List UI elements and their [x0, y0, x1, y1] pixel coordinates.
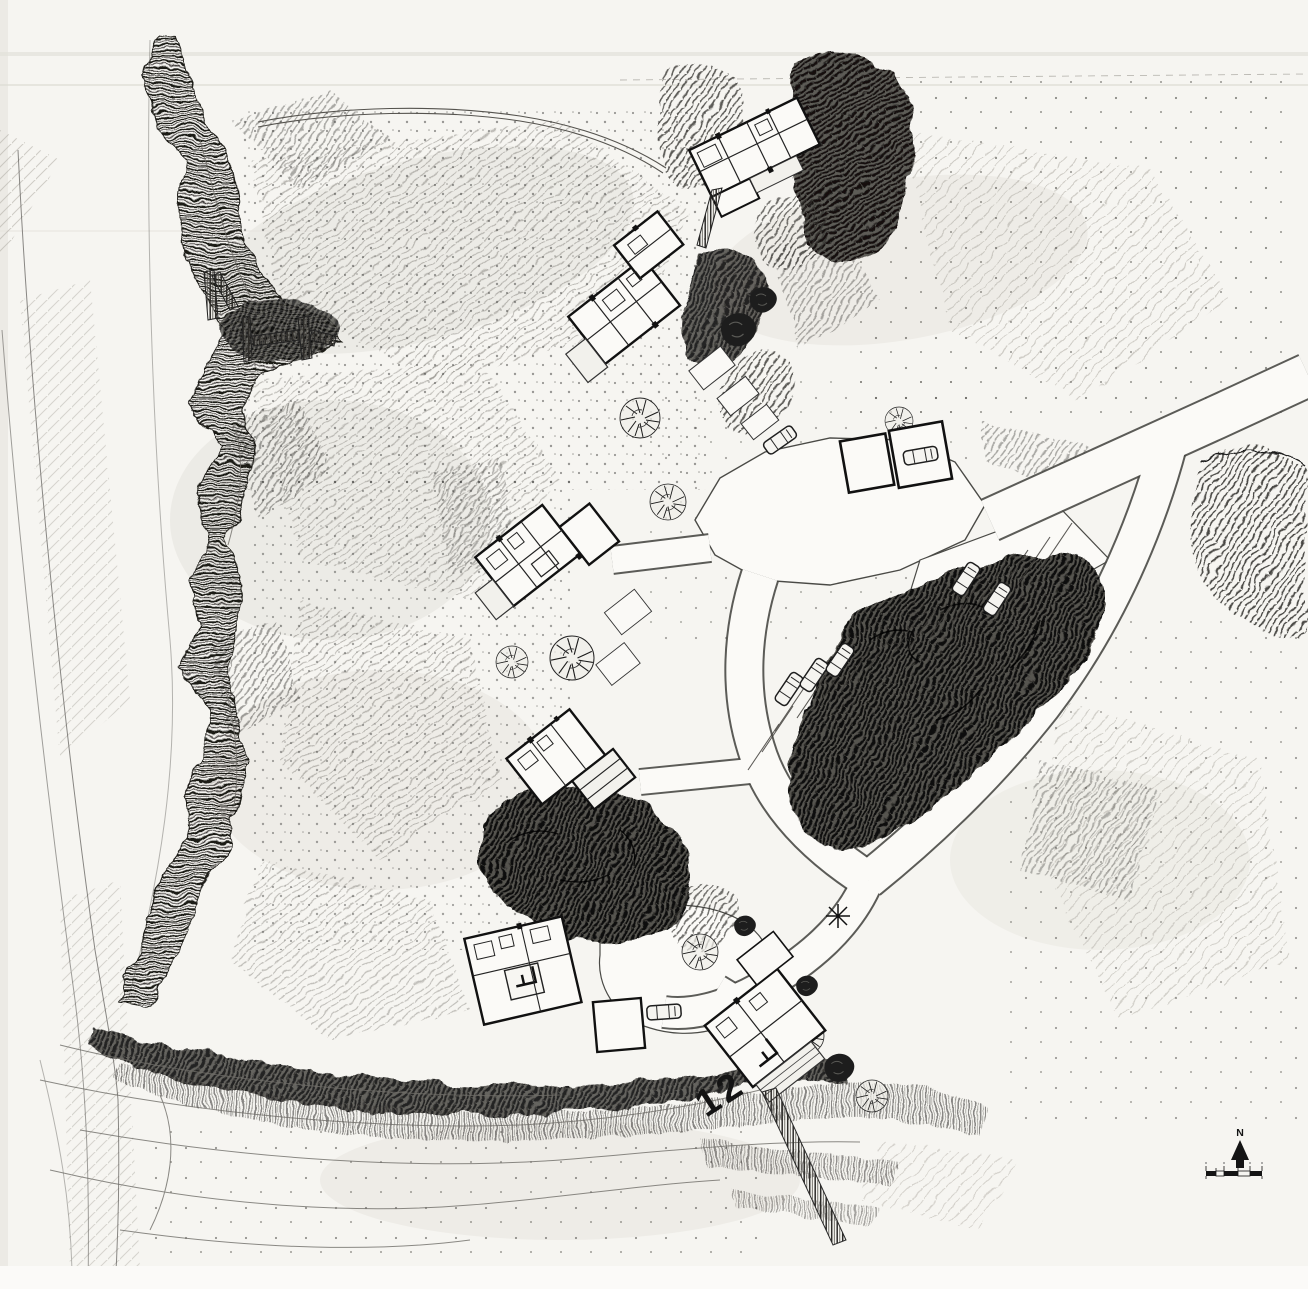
tree	[496, 646, 528, 678]
site-plan-drawing: 12 N	[0, 0, 1308, 1289]
paper-margin-bottom	[0, 1266, 1308, 1289]
car	[647, 1004, 682, 1020]
north-label: N	[1236, 1127, 1244, 1139]
southwest-garage	[593, 998, 645, 1052]
tree	[682, 934, 718, 970]
tree	[550, 636, 594, 680]
site-plan-canvas: 12 N	[0, 0, 1308, 1289]
tree	[650, 484, 686, 520]
tree	[620, 398, 660, 438]
shrub	[826, 904, 850, 928]
tree	[856, 1080, 888, 1112]
